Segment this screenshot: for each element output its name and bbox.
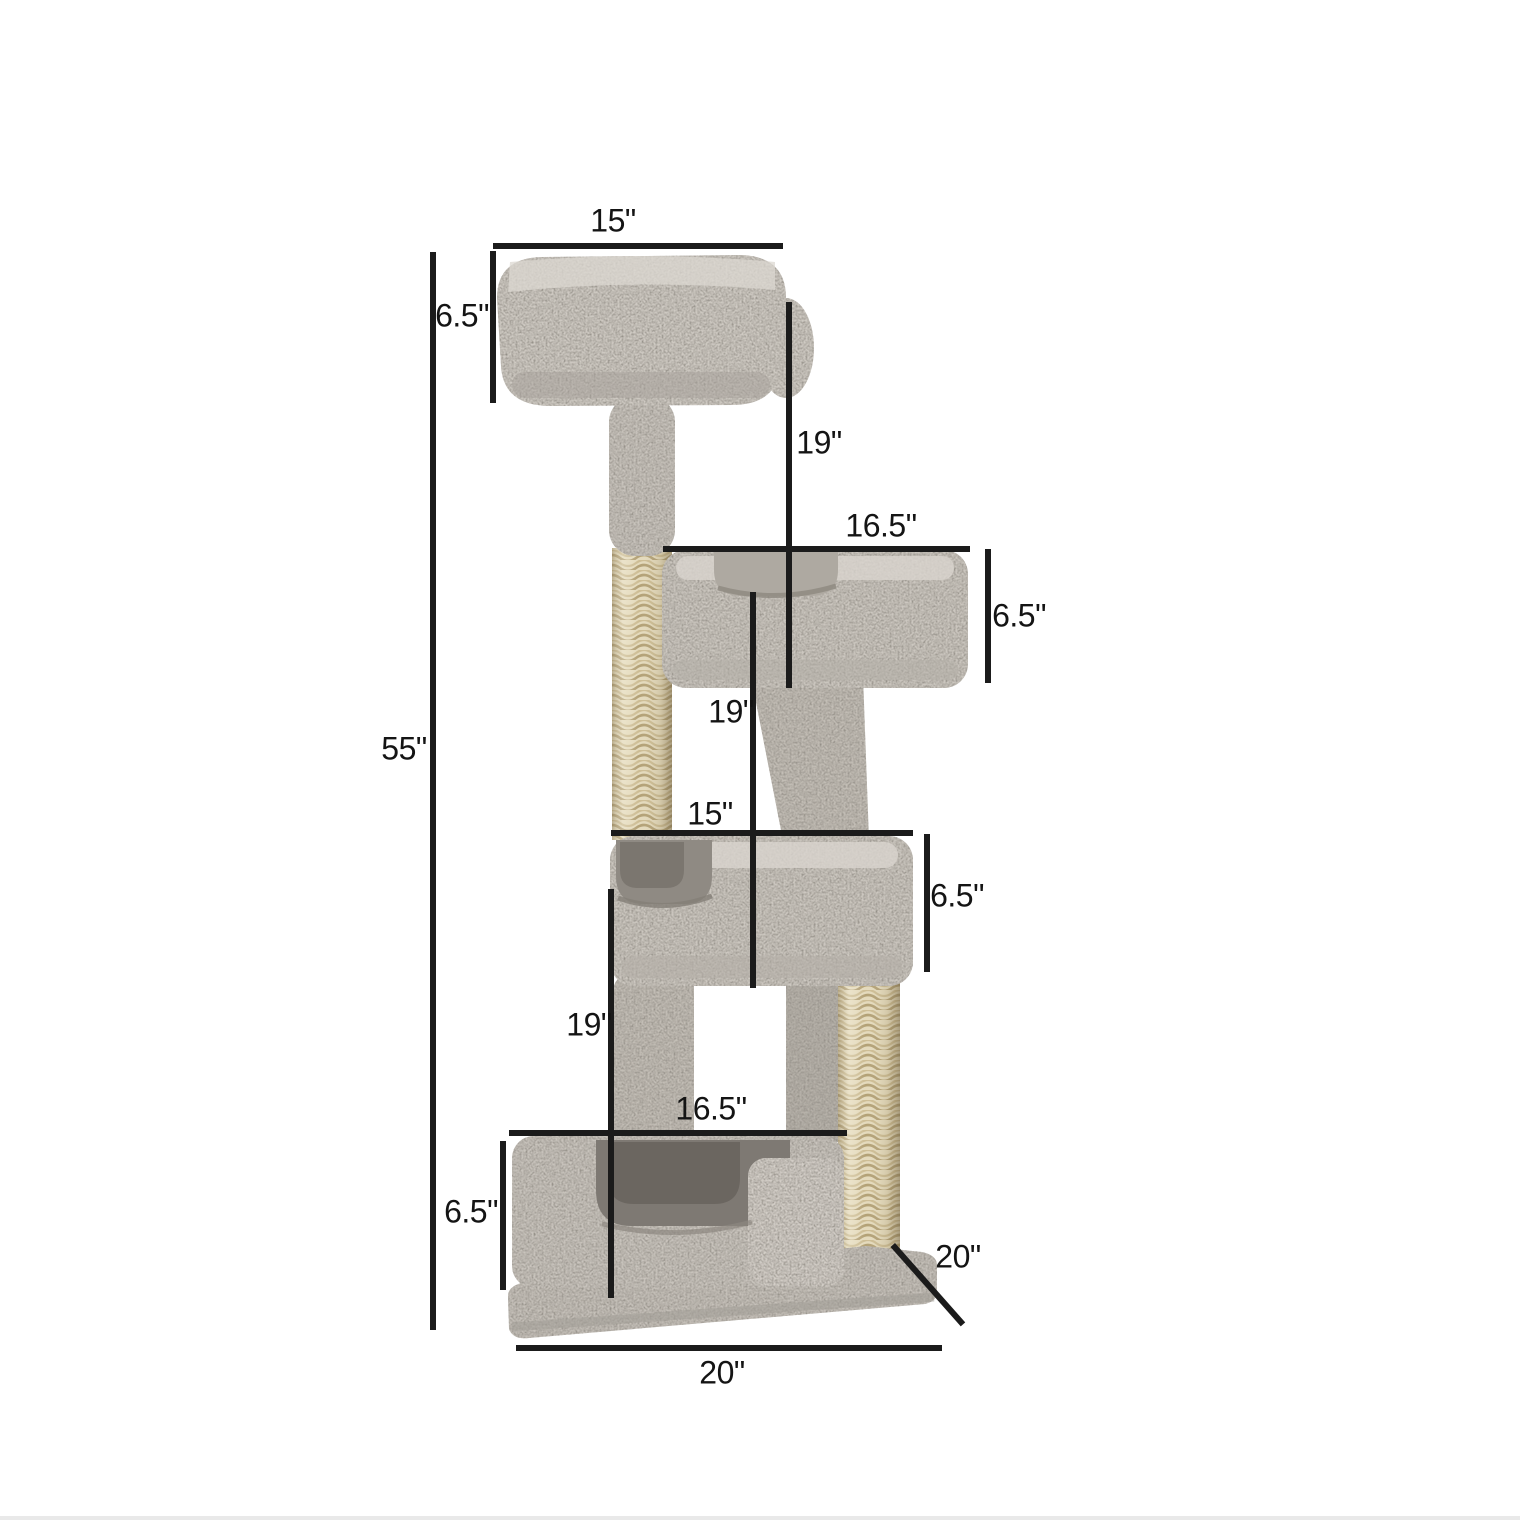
dim-label-total-height: 55" <box>381 731 426 768</box>
bottom-bed <box>512 1136 844 1288</box>
top-bed-pedestal-post <box>609 396 675 556</box>
dim-label-top-bed-height: 6.5" <box>435 298 489 335</box>
dim-label-middle-gap-height: 19" <box>708 694 753 731</box>
dim-line-middle-gap-height <box>750 592 756 988</box>
cat-tree-illustration <box>0 0 1520 1520</box>
dim-label-lower-gap-height: 19" <box>566 1007 611 1044</box>
middle-bed <box>610 836 913 986</box>
dim-label-bottom-bed-height: 6.5" <box>444 1194 498 1231</box>
lower-rear-post <box>786 976 840 1142</box>
dim-line-total-height <box>430 252 436 1330</box>
dim-label-top-gap-height: 19" <box>796 425 841 462</box>
dim-label-upper-bed-height: 6.5" <box>992 598 1046 635</box>
dim-line-top-gap-height <box>786 302 792 688</box>
dim-line-bottom-bed-width <box>509 1130 847 1136</box>
upper-bed <box>662 550 968 688</box>
dim-line-bottom-bed-height <box>500 1141 506 1290</box>
dim-line-top-bed-height <box>490 251 496 403</box>
dim-line-upper-bed-width <box>663 546 970 552</box>
dim-label-middle-bed-width: 15" <box>687 796 732 833</box>
dim-label-middle-bed-height: 6.5" <box>930 878 984 915</box>
image-bottom-edge <box>0 1516 1520 1520</box>
middle-support-post <box>756 676 864 840</box>
dim-label-top-bed-width: 15" <box>590 203 635 240</box>
dim-line-lower-gap-height <box>608 889 614 1298</box>
dim-line-middle-bed-width <box>611 830 913 836</box>
dim-line-base-width <box>516 1345 942 1351</box>
dim-label-base-width: 20" <box>699 1355 744 1392</box>
dim-line-top-bed-width <box>493 243 783 249</box>
lower-sisal-post <box>838 974 900 1276</box>
dim-label-base-depth: 20" <box>935 1239 980 1276</box>
top-bed <box>497 255 814 406</box>
dim-label-upper-bed-width: 16.5" <box>845 508 916 545</box>
dim-label-bottom-bed-width: 16.5" <box>675 1091 746 1128</box>
product-dimension-diagram: 15" 6.5" 19" 16.5" 6.5" 19" 55" 15" 6.5"… <box>0 0 1520 1520</box>
dim-line-upper-bed-height <box>985 549 991 683</box>
